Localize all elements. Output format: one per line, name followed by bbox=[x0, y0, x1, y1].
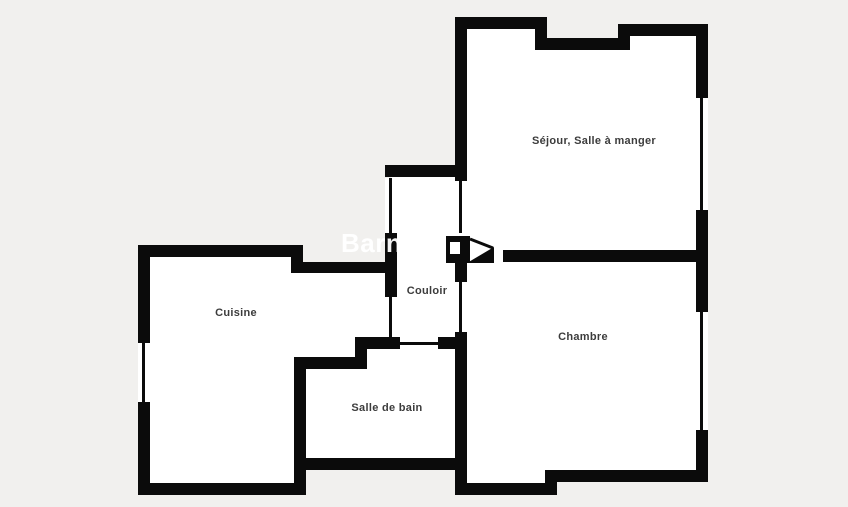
wall-chambre-bottom-left bbox=[455, 483, 557, 495]
couloir-sdb-door-line bbox=[400, 342, 438, 345]
wall-couloir-left-lower bbox=[385, 275, 397, 297]
wall-couloir-top bbox=[385, 165, 467, 177]
wall-cuisine-left-lower bbox=[138, 402, 150, 495]
wall-sejour-top-right bbox=[618, 24, 708, 36]
room-floor-cuisine bbox=[144, 251, 299, 489]
building-notch bbox=[547, 23, 618, 38]
wall-sejour-right-lower bbox=[696, 210, 708, 252]
room-label-salle-de-bain: Salle de bain bbox=[351, 402, 422, 414]
couloir-sejour-door-line bbox=[459, 181, 462, 233]
wall-cuisine-right bbox=[294, 357, 306, 495]
wall-sejour-right-upper bbox=[696, 24, 708, 98]
room-label-chambre: Chambre bbox=[558, 331, 608, 343]
wall-chambre-bottom-right bbox=[545, 470, 708, 482]
wall-sejour-left bbox=[455, 17, 467, 181]
sejour-east-window-pane bbox=[700, 98, 703, 210]
couloir-chambre-door-line bbox=[459, 282, 462, 332]
wall-nook-top bbox=[293, 262, 397, 273]
couloir-cuisine-door-line bbox=[389, 297, 392, 337]
wall-sejour-chambre-divider bbox=[503, 250, 708, 262]
wall-cuisine-left-upper bbox=[138, 245, 150, 343]
wall-notch-bottom bbox=[535, 38, 630, 50]
cuisine-west-window-pane bbox=[142, 343, 145, 402]
wall-cuisine-step-vertical bbox=[291, 245, 303, 273]
wall-chambre-right-lower bbox=[696, 430, 708, 482]
room-floor-chambre-lower bbox=[461, 256, 557, 489]
wall-divider-sdb-chambre bbox=[455, 332, 467, 495]
wall-cuisine-top bbox=[138, 245, 303, 257]
floor-plan: Séjour, Salle à manger Chambre Couloir S… bbox=[0, 0, 848, 507]
entry-door-swing-icon bbox=[440, 226, 504, 270]
wall-sdb-bottom bbox=[294, 458, 463, 470]
chambre-east-window-pane bbox=[700, 312, 703, 430]
wall-cuisine-bottom bbox=[138, 483, 305, 495]
wall-sejour-top-left bbox=[455, 17, 547, 29]
room-label-cuisine: Cuisine bbox=[215, 307, 257, 319]
room-label-couloir: Couloir bbox=[407, 285, 448, 297]
room-label-sejour: Séjour, Salle à manger bbox=[532, 135, 656, 147]
couloir-west-window-pane bbox=[389, 178, 392, 233]
